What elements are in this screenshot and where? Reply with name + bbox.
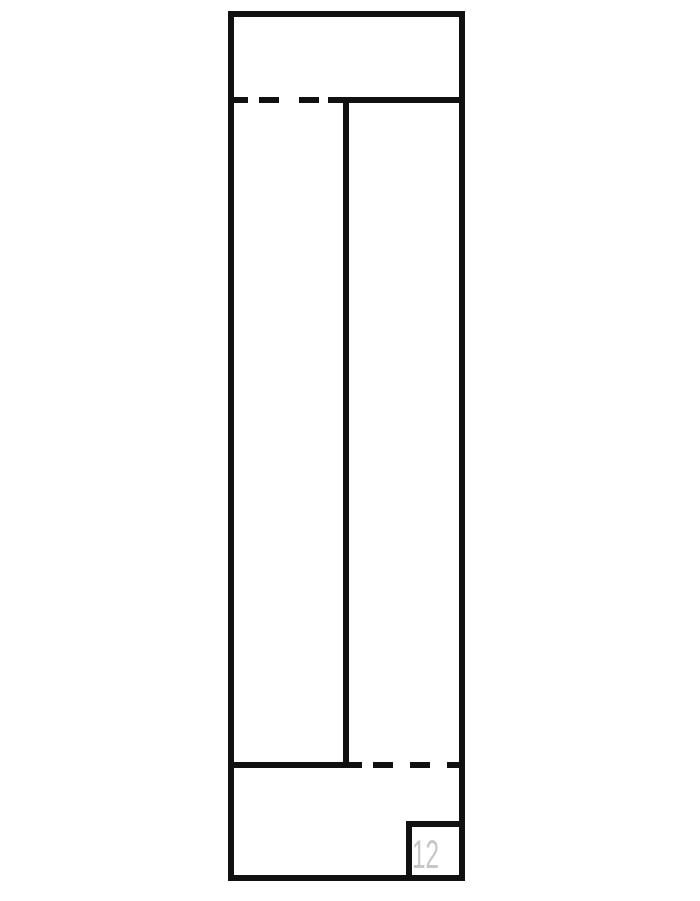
technical-drawing: 12 [0, 0, 700, 901]
part-number-label: 12 [412, 833, 439, 877]
drawing-canvas: 12 [0, 0, 700, 901]
